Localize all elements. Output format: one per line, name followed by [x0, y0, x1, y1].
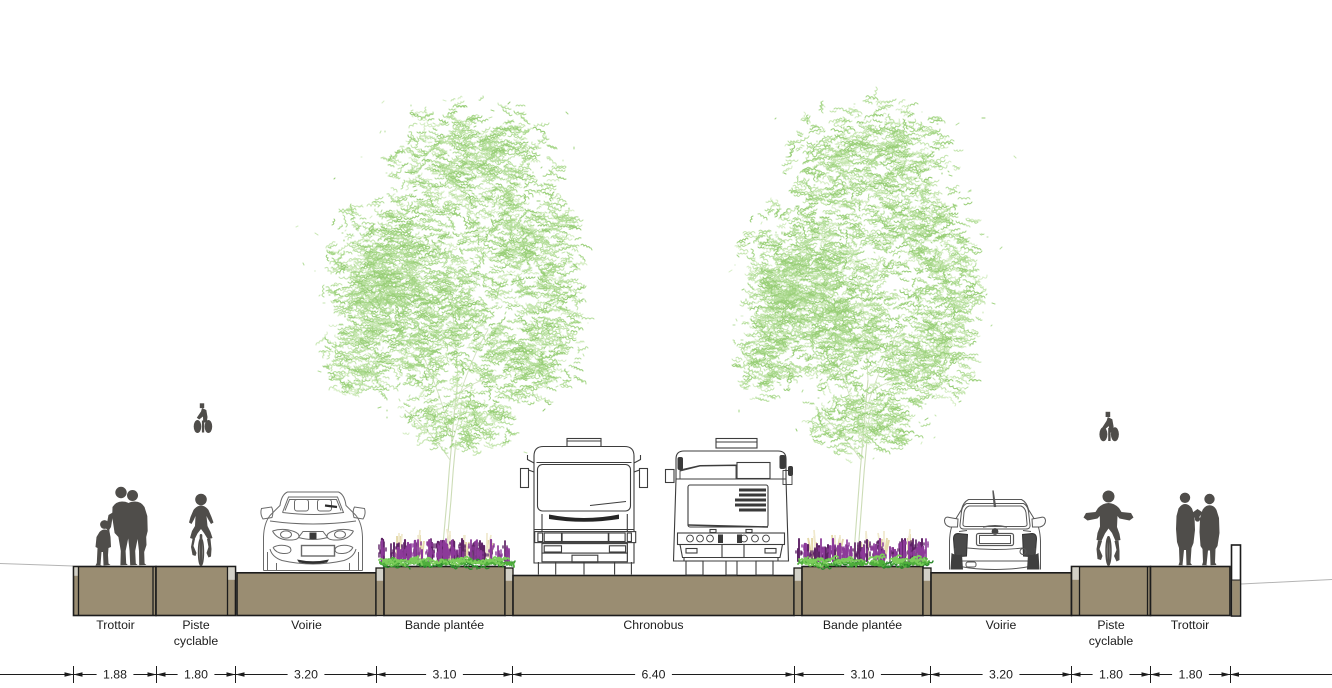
svg-text:1.80: 1.80: [1099, 668, 1123, 682]
svg-text:Piste: Piste: [182, 618, 209, 632]
svg-text:3.20: 3.20: [989, 668, 1013, 682]
svg-text:1.80: 1.80: [184, 668, 208, 682]
svg-text:3.10: 3.10: [433, 668, 457, 682]
svg-text:6.40: 6.40: [642, 668, 666, 682]
svg-text:Chronobus: Chronobus: [623, 618, 683, 632]
svg-text:Voirie: Voirie: [986, 618, 1017, 632]
svg-text:3.20: 3.20: [294, 668, 318, 682]
svg-text:1.88: 1.88: [103, 668, 127, 682]
svg-text:cyclable: cyclable: [1089, 634, 1134, 648]
svg-text:Bande plantée: Bande plantée: [823, 618, 902, 632]
svg-text:Trottoir: Trottoir: [1171, 618, 1210, 632]
svg-text:3.10: 3.10: [851, 668, 875, 682]
svg-text:Piste: Piste: [1097, 618, 1124, 632]
svg-text:Trottoir: Trottoir: [96, 618, 135, 632]
svg-text:cyclable: cyclable: [174, 634, 219, 648]
svg-text:Voirie: Voirie: [291, 618, 322, 632]
svg-text:1.80: 1.80: [1179, 668, 1203, 682]
svg-text:Bande plantée: Bande plantée: [405, 618, 484, 632]
